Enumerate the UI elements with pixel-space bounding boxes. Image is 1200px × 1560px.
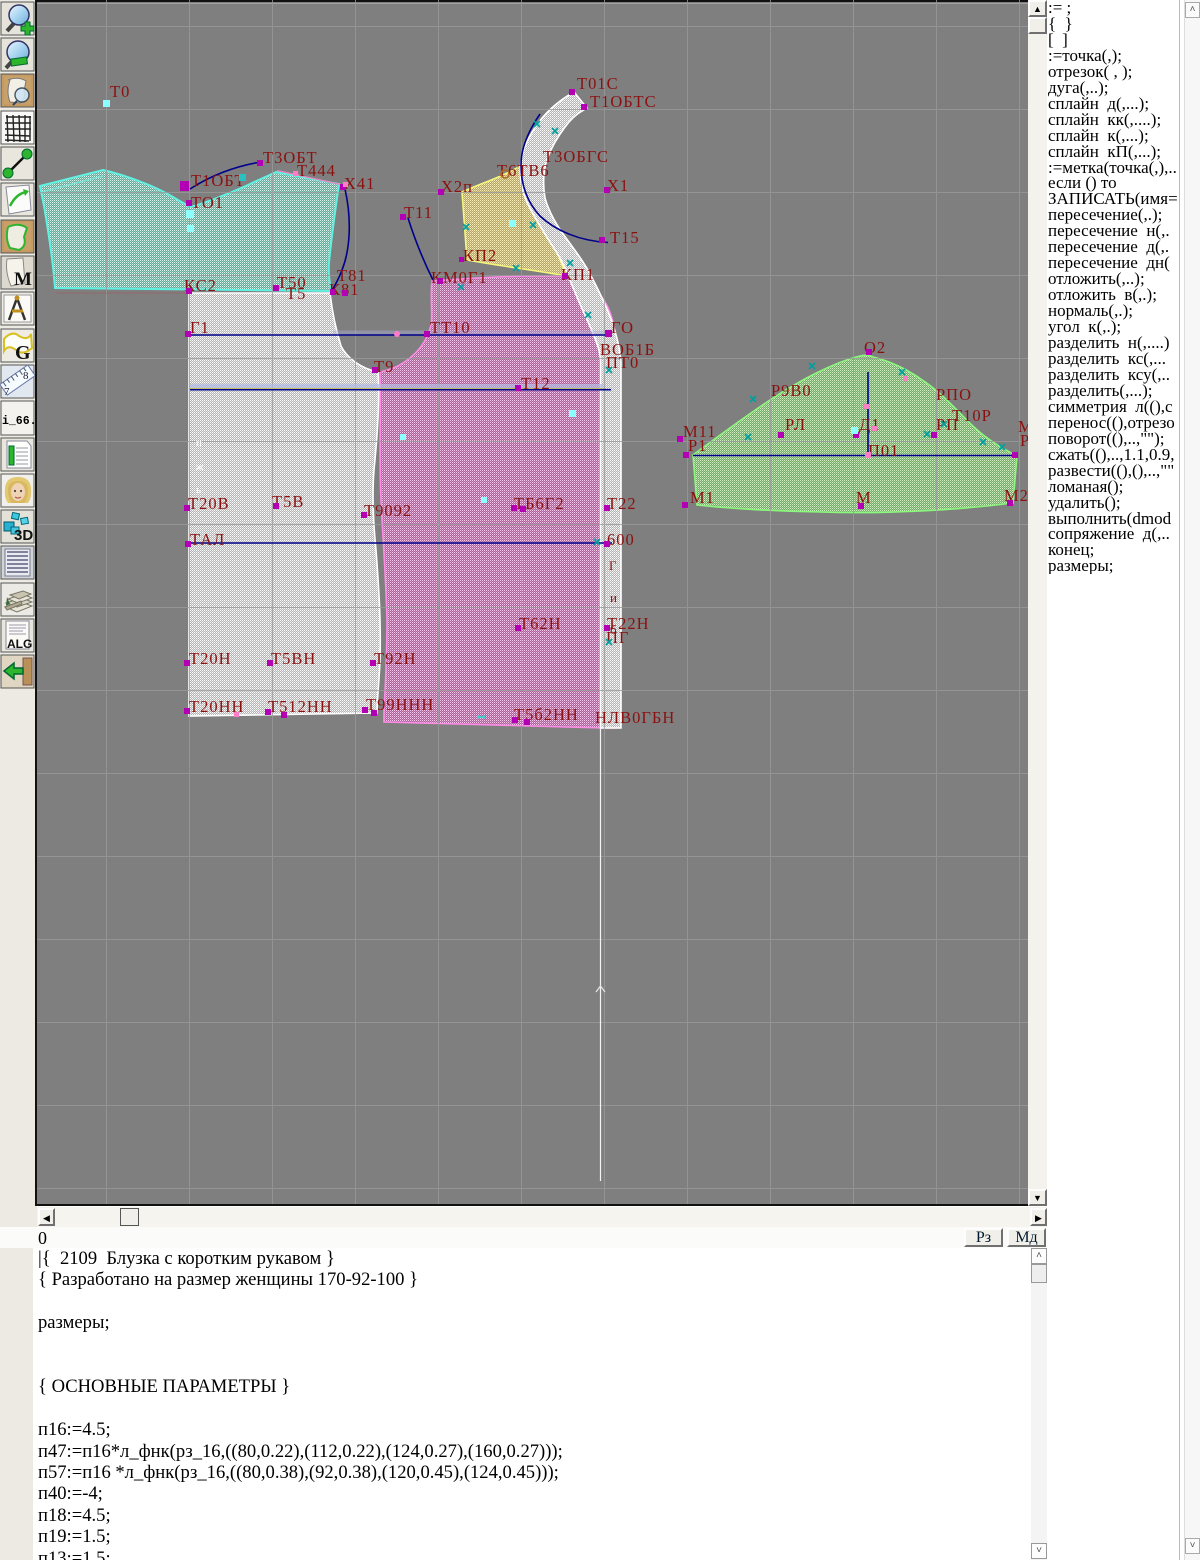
svg-text:РП: РП (936, 415, 959, 434)
svg-text:Т01С: Т01С (577, 74, 619, 93)
svg-text:ж: ж (195, 461, 204, 473)
svg-text:КП2: КП2 (463, 246, 497, 265)
svg-text:Т5б2НН: Т5б2НН (514, 705, 579, 724)
svg-text:Т20Н: Т20Н (189, 649, 232, 668)
svg-text:Т1ОБТ: Т1ОБТ (191, 171, 246, 190)
svg-text:Р: Р (1020, 431, 1028, 450)
svg-text:Х1: Х1 (607, 176, 629, 195)
svg-text:НЛВ0ГБН: НЛВ0ГБН (595, 708, 675, 727)
svg-text:РПО: РПО (936, 385, 972, 404)
svg-text:Т22: Т22 (607, 494, 637, 513)
svg-text:КМ0Г1: КМ0Г1 (431, 268, 488, 287)
svg-text:Т9: Т9 (374, 357, 394, 376)
svg-text:Т1ОБТС: Т1ОБТС (590, 92, 657, 111)
svg-text:ТО1: ТО1 (191, 193, 224, 212)
svg-text:П01: П01 (868, 441, 899, 460)
svg-text:Г: Г (609, 558, 617, 573)
svg-text:Т5ВН: Т5ВН (271, 649, 316, 668)
svg-text:600: 600 (607, 530, 635, 549)
svg-text:ГО: ГО (611, 318, 634, 337)
svg-text:РЛ: РЛ (785, 415, 806, 434)
svg-text:3D: 3D (14, 527, 33, 544)
svg-text:Т0: Т0 (110, 82, 130, 101)
svg-text:Х41: Х41 (344, 174, 375, 193)
svg-text:ПТ0: ПТ0 (606, 353, 639, 372)
svg-text:Т444: Т444 (297, 161, 336, 180)
svg-text:Г1: Г1 (190, 318, 210, 337)
svg-text:М1: М1 (690, 488, 715, 507)
svg-text:Х2п: Х2п (441, 177, 473, 196)
svg-text:Т62Н: Т62Н (519, 614, 562, 633)
svg-text:8: 8 (23, 370, 29, 382)
svg-text:п: п (196, 437, 202, 449)
svg-text:Р9В0: Р9В0 (771, 381, 812, 400)
svg-text:i_66.: i_66. (2, 415, 37, 428)
svg-text:и: и (610, 590, 617, 605)
svg-text:Т3ОБГС: Т3ОБГС (543, 147, 609, 166)
svg-text:ТАЛ: ТАЛ (190, 530, 225, 549)
svg-text:7: 7 (4, 386, 10, 398)
svg-text:Д1: Д1 (859, 415, 881, 434)
svg-text:M: M (14, 269, 32, 290)
svg-text:Т5: Т5 (286, 284, 306, 303)
svg-text:ТТ10: ТТ10 (430, 318, 471, 337)
svg-text:G: G (15, 342, 31, 364)
svg-text:Т512НН: Т512НН (268, 697, 333, 716)
svg-text:Т15: Т15 (610, 228, 640, 247)
svg-text:Т92Н: Т92Н (374, 649, 417, 668)
svg-text:Р1: Р1 (688, 436, 707, 455)
svg-text:Т20В: Т20В (188, 494, 230, 513)
svg-text:Т11: Т11 (404, 203, 433, 222)
svg-text:ALG: ALG (7, 637, 32, 651)
svg-text:Т12: Т12 (521, 374, 551, 393)
svg-text:Т9092: Т9092 (364, 501, 412, 520)
